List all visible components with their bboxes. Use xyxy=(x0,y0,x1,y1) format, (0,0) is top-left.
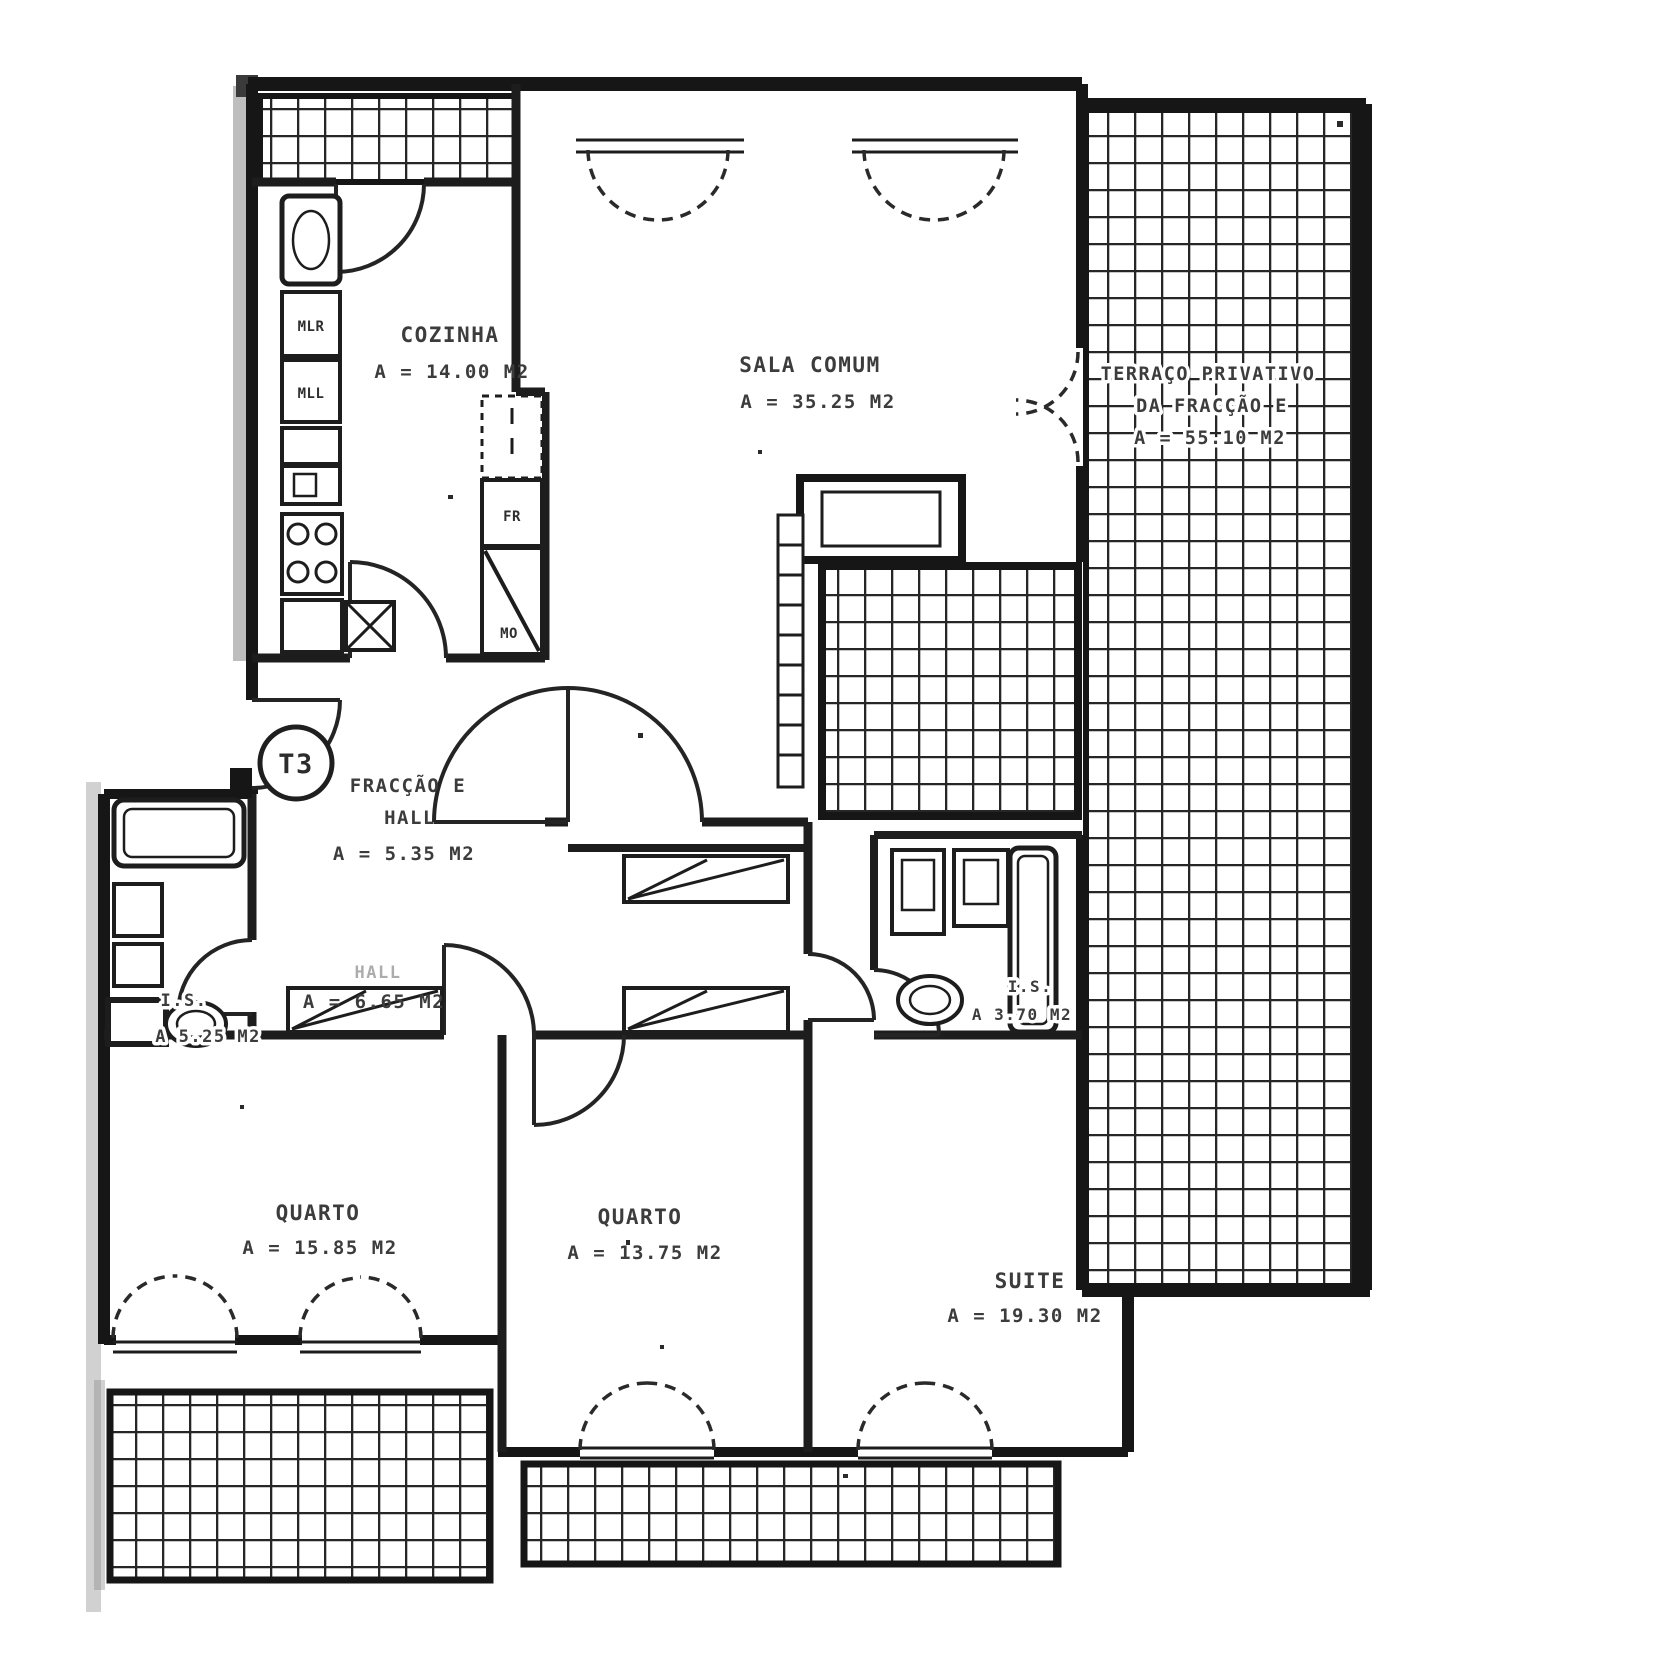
toilet-suite xyxy=(892,850,944,934)
door-quarto2 xyxy=(534,1035,624,1125)
door-hall-sala-leaf2 xyxy=(434,688,568,822)
quarto2-name: QUARTO xyxy=(598,1205,683,1229)
door-sala-terrace xyxy=(1016,352,1078,462)
quarto1-name: QUARTO xyxy=(276,1201,361,1225)
fraccao-label: FRACÇÃO E xyxy=(350,773,466,797)
terrace-hatch xyxy=(1086,110,1356,1286)
kitchen-counter xyxy=(282,600,342,652)
is-suite-area: A 3.70 M2 xyxy=(972,1005,1072,1024)
window-quarto1-a xyxy=(113,1276,237,1338)
mll-label: MLL xyxy=(298,386,325,402)
is-suite-name: I.S. xyxy=(1008,977,1053,996)
sink-suite xyxy=(898,976,962,1024)
laundry-tub xyxy=(282,196,340,284)
cozinha-area: A = 14.00 M2 xyxy=(374,361,529,383)
quarto1-area: A = 15.85 M2 xyxy=(242,1237,397,1259)
quarto2-area: A = 13.75 M2 xyxy=(567,1242,722,1264)
door-hall-sala-leaf1 xyxy=(568,688,702,822)
terraco-line2: DA FRACÇÃO E xyxy=(1136,394,1288,417)
unit-type-label: T3 xyxy=(278,749,314,780)
hall-entrada-area: A = 5.35 M2 xyxy=(333,843,475,865)
bidet-left xyxy=(114,944,162,986)
wardrobe-corridor-bottom xyxy=(624,988,788,1032)
bidet-suite xyxy=(954,850,1008,926)
bedroom-balcony-left-hatch xyxy=(110,1392,490,1580)
hall-interior-area: A = 6.65 M2 xyxy=(303,991,445,1013)
sala-area: A = 35.25 M2 xyxy=(740,391,895,413)
window-quarto2 xyxy=(580,1383,714,1450)
is-left-area: A 5.25 M2 xyxy=(155,1027,261,1047)
mo-label: MO xyxy=(500,626,518,642)
bedroom-balcony-bottom-hatch xyxy=(524,1464,1058,1564)
floor-plan-drawing: T3 COZINHA A = 14.00 M2 SALA COMUM A = 3… xyxy=(0,0,1673,1665)
sala-name: SALA COMUM xyxy=(739,353,880,377)
hall-interior-name: HALL xyxy=(355,963,402,983)
hall-entrada-name: HALL xyxy=(384,807,436,829)
window-sala-2 xyxy=(864,150,1004,220)
wardrobe-corridor-top xyxy=(624,856,788,902)
entry-jamb-block xyxy=(230,768,252,798)
suite-area: A = 19.30 M2 xyxy=(947,1305,1102,1327)
radiator xyxy=(778,515,803,787)
cozinha-name: COZINHA xyxy=(400,323,499,347)
patio-hatch xyxy=(822,566,1078,816)
window-suite xyxy=(858,1383,992,1450)
pantry-shelves xyxy=(482,396,542,478)
unit-badge: T3 xyxy=(260,727,332,799)
terraco-area: A = 55.10 M2 xyxy=(1134,428,1286,449)
door-quarto1 xyxy=(444,945,534,1035)
window-sala-1 xyxy=(588,150,728,220)
toilet-left xyxy=(114,884,162,936)
counter-module-1 xyxy=(282,428,340,464)
counter-module-2 xyxy=(282,466,340,504)
stove xyxy=(282,514,342,594)
door-suite-entry xyxy=(808,954,874,1020)
kitchen-balcony-hatch xyxy=(260,96,516,182)
is-left-name: I.S. xyxy=(161,991,208,1011)
mlr-label: MLR xyxy=(298,319,325,335)
hearth xyxy=(800,478,962,560)
kitchen-sink xyxy=(346,602,394,650)
window-sills-top xyxy=(576,140,1018,152)
hearth-outer xyxy=(800,478,962,560)
suite-name: SUITE xyxy=(995,1269,1066,1293)
scanned-floor-plan-page: T3 COZINHA A = 14.00 M2 SALA COMUM A = 3… xyxy=(0,0,1673,1665)
fr-label: FR xyxy=(503,509,521,525)
door-balcony-kitchen xyxy=(336,184,424,272)
window-quarto1-b xyxy=(300,1277,421,1338)
terraco-line1: TERRAÇO PRIVATIVO xyxy=(1101,364,1316,385)
